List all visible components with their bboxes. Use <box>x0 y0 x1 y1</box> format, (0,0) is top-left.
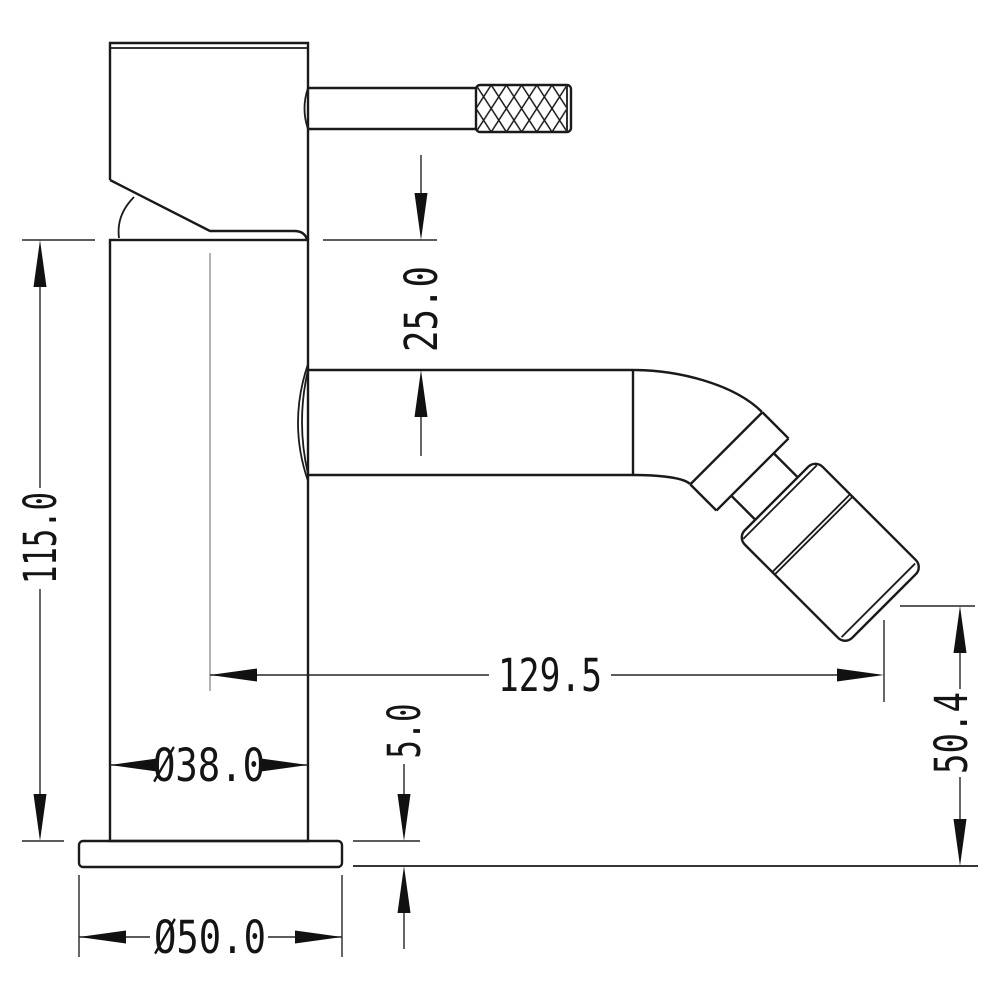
dim-spout-drop: 25.0 <box>323 155 448 456</box>
dim-base-thickness: 5.0 <box>353 704 431 950</box>
arrowhead-down <box>415 193 428 240</box>
bend-boundary-2 <box>716 438 788 510</box>
arrowhead-left <box>79 931 126 944</box>
aerator-face-cap-line <box>842 564 916 638</box>
arrowhead-down <box>34 794 47 841</box>
arrowhead-left <box>210 669 257 682</box>
technical-drawing-canvas: 115.0 25.0 129.5 50.4 5.0 Ø38.0 <box>0 0 1000 1000</box>
aerator-back-chamfer-line <box>743 465 817 539</box>
dim-outlet-height: 50.4 <box>900 606 978 866</box>
arrowhead-down <box>398 794 411 841</box>
bend-boundary-1 <box>690 412 762 484</box>
dim-body-diameter: Ø38.0 <box>110 739 308 792</box>
arrowhead-up <box>954 606 967 653</box>
dim-spout-reach: 129.5 <box>210 620 884 702</box>
arrowhead-down <box>954 819 967 866</box>
spout-elbow-inner-curve <box>633 475 690 484</box>
handle-lever <box>305 88 477 129</box>
dim-base-diameter: Ø50.0 <box>79 875 342 964</box>
aerator-division-line <box>772 494 852 574</box>
spout-arm <box>298 364 762 484</box>
dim-overall-height: 115.0 <box>14 240 95 841</box>
dim-label-spout-drop: 25.0 <box>395 266 448 352</box>
dim-label-overall-height: 115.0 <box>14 492 67 584</box>
knurled-grip <box>476 85 571 132</box>
arrowhead-up <box>398 866 411 913</box>
arrowhead-left <box>110 759 157 772</box>
dim-label-body-diameter: Ø38.0 <box>153 739 265 792</box>
dim-label-base-thickness: 5.0 <box>378 704 431 759</box>
handle-head <box>110 43 308 240</box>
base-plate <box>79 841 342 867</box>
arrowhead-up <box>34 240 47 287</box>
spout-elbow-outer-curve <box>633 370 762 412</box>
arrowhead-up <box>415 370 428 417</box>
dim-label-spout-reach: 129.5 <box>498 649 602 702</box>
cartridge-ball-arc <box>119 197 134 238</box>
aerator-head <box>738 460 923 645</box>
arrowhead-right <box>261 759 308 772</box>
mixer-tap-drawing: 115.0 25.0 129.5 50.4 5.0 Ø38.0 <box>0 0 1000 1000</box>
spout-angled-end <box>687 409 922 644</box>
dim-label-outlet-height: 50.4 <box>925 692 978 774</box>
arrowhead-right <box>295 931 342 944</box>
arrowhead-right <box>837 669 884 682</box>
dim-label-base-diameter: Ø50.0 <box>154 911 266 964</box>
